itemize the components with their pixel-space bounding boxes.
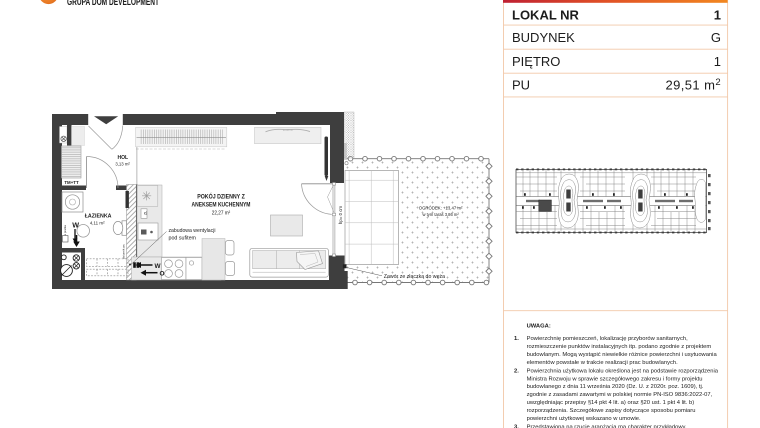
svg-text:ZL: ZL (144, 211, 148, 215)
svg-text:PIĘTRO: PIĘTRO (512, 54, 560, 69)
svg-text:zabudowa wentylacji: zabudowa wentylacji (169, 228, 216, 234)
svg-text:O: O (160, 271, 165, 278)
svg-text:Powierzchnia użytkowa lokalu o: Powierzchnia użytkowa lokalu określona j… (527, 368, 719, 374)
svg-text:rozmieszczenie punktów instala: rozmieszczenie punktów instalacyjnych it… (527, 344, 712, 350)
svg-text:1.: 1. (514, 336, 519, 342)
svg-text:W: W (155, 263, 162, 270)
svg-text:G: G (711, 30, 721, 45)
svg-text:2.: 2. (514, 368, 519, 374)
svg-text:3.: 3. (514, 424, 519, 428)
svg-text:Ministra Rozwoju w sprawie szc: Ministra Rozwoju w sprawie szczegółowego… (527, 376, 703, 382)
svg-text:GRUPA DOM DEVELOPMENT: GRUPA DOM DEVELOPMENT (67, 0, 159, 8)
svg-text:OGRÓDEK: +13,47 m²: OGRÓDEK: +13,47 m² (419, 205, 463, 211)
svg-text:budowlanego z dnia 11 września: budowlanego z dnia 11 września 2020 (Dz.… (527, 384, 704, 390)
svg-text:29,51 m2: 29,51 m2 (666, 77, 721, 92)
svg-text:UWAGA:: UWAGA: (527, 324, 551, 330)
svg-text:22,27 m²: 22,27 m² (212, 211, 231, 217)
svg-text:TM+TT: TM+TT (64, 180, 79, 185)
svg-text:powierzchni użytkowej wskazano: powierzchni użytkowej wskazano w umowie. (527, 416, 641, 422)
svg-text:Zawór ze złączką do węża: Zawór ze złączką do węża (384, 274, 445, 280)
svg-text:ANEKSEM KUCHENNYM: ANEKSEM KUCHENNYM (192, 202, 251, 209)
svg-text:Przedstawiona na rzucie aranża: Przedstawiona na rzucie aranżacja ma cha… (527, 424, 687, 428)
svg-text:1: 1 (714, 54, 721, 69)
svg-text:pod sufitem: pod sufitem (169, 236, 197, 242)
svg-text:rozporządzenia. Szczegółowe za: rozporządzenia. Szczegółowe zapisy dotyc… (527, 408, 696, 414)
svg-text:budowlanym. Mogą wystąpić niew: budowlanym. Mogą wystąpić niewielkie róż… (527, 352, 718, 358)
svg-text:elementów powstałe w trakcie r: elementów powstałe w trakcie realizacji … (527, 360, 679, 366)
svg-text:BUDYNEK: BUDYNEK (512, 30, 575, 45)
svg-text:hp= 0 cm: hp= 0 cm (338, 206, 343, 225)
svg-text:w tym taras 3,86 m²: w tym taras 3,86 m² (422, 212, 459, 217)
svg-text:POKÓJ DZIENNY Z: POKÓJ DZIENNY Z (197, 192, 245, 201)
svg-text:PU: PU (512, 77, 530, 92)
svg-text:3,13 m²: 3,13 m² (115, 162, 130, 168)
svg-text:ŁAZIENKA: ŁAZIENKA (85, 214, 112, 220)
svg-text:4,11 m²: 4,11 m² (90, 221, 105, 227)
svg-text:zbiornik wc: zbiornik wc (122, 244, 126, 259)
svg-text:HOL: HOL (117, 155, 128, 161)
svg-text:zgodnie z zasadami zawartymi w: zgodnie z zasadami zawartymi w polskiej … (527, 392, 713, 398)
svg-text:LOKAL NR: LOKAL NR (512, 7, 580, 22)
svg-text:1: 1 (714, 7, 721, 22)
svg-text:uwzględniając przepisy §14 pkt: uwzględniając przepisy §14 pkt 4 lit. a)… (527, 400, 695, 406)
svg-text:Powierzchnię pomieszczeń, loka: Powierzchnię pomieszczeń, lokalizację pr… (527, 336, 688, 342)
